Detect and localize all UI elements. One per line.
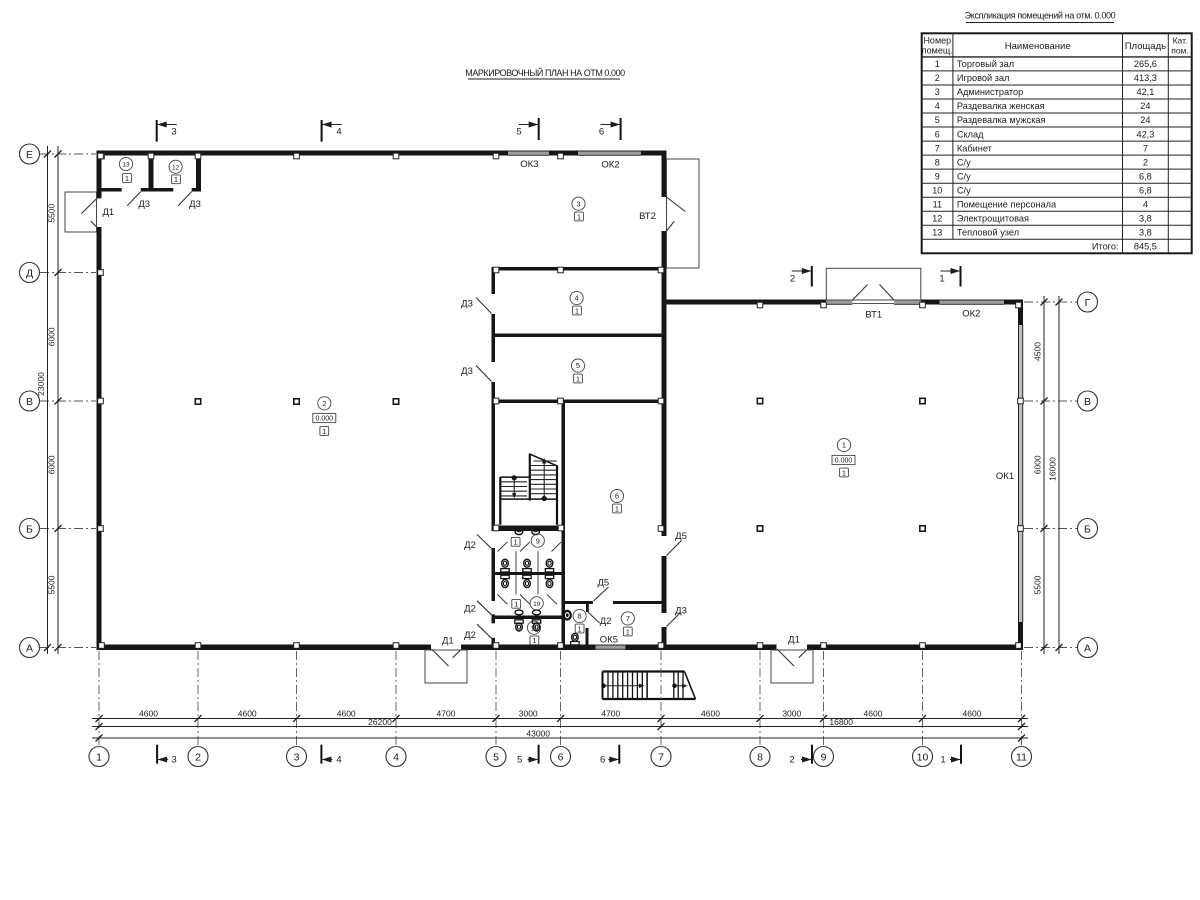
svg-text:5: 5 xyxy=(516,127,521,138)
svg-text:4600: 4600 xyxy=(701,709,720,719)
svg-text:10: 10 xyxy=(917,751,929,763)
svg-text:6000: 6000 xyxy=(47,327,57,346)
svg-text:Наименование: Наименование xyxy=(1005,41,1071,52)
svg-text:Итого:: Итого: xyxy=(1092,242,1119,252)
svg-text:С/у: С/у xyxy=(957,185,971,195)
svg-text:Д: Д xyxy=(26,267,33,279)
svg-text:Д3: Д3 xyxy=(675,606,687,617)
svg-text:1: 1 xyxy=(615,504,619,513)
svg-text:26200: 26200 xyxy=(368,717,392,727)
svg-text:ОК5: ОК5 xyxy=(600,635,618,646)
svg-text:Склад: Склад xyxy=(957,129,984,139)
svg-text:4: 4 xyxy=(575,294,579,303)
svg-text:3: 3 xyxy=(935,87,940,97)
svg-text:845,5: 845,5 xyxy=(1134,242,1157,252)
svg-text:ОК3: ОК3 xyxy=(520,159,538,170)
svg-text:4: 4 xyxy=(336,127,341,138)
svg-text:6: 6 xyxy=(935,129,940,139)
svg-text:1: 1 xyxy=(532,636,536,645)
svg-text:5: 5 xyxy=(493,751,499,763)
svg-text:2: 2 xyxy=(790,274,795,285)
svg-text:Торговый зал: Торговый зал xyxy=(957,59,1014,69)
svg-text:1: 1 xyxy=(96,751,102,763)
svg-text:3,8: 3,8 xyxy=(1139,228,1152,238)
svg-text:1: 1 xyxy=(576,374,580,383)
svg-text:2: 2 xyxy=(195,751,201,763)
svg-text:3000: 3000 xyxy=(782,709,801,719)
svg-text:5: 5 xyxy=(576,361,580,370)
svg-text:4: 4 xyxy=(336,755,341,766)
svg-text:Раздевалка мужская: Раздевалка мужская xyxy=(957,115,1046,125)
svg-text:42,3: 42,3 xyxy=(1136,129,1154,139)
svg-text:4600: 4600 xyxy=(238,709,257,719)
svg-text:4700: 4700 xyxy=(601,709,620,719)
svg-text:7: 7 xyxy=(658,751,664,763)
svg-text:12: 12 xyxy=(172,164,180,171)
svg-text:4700: 4700 xyxy=(437,709,456,719)
svg-text:Б: Б xyxy=(1084,523,1091,535)
svg-text:помещ.: помещ. xyxy=(922,46,953,56)
svg-text:Д3: Д3 xyxy=(189,199,201,210)
svg-text:1: 1 xyxy=(939,274,944,285)
svg-text:6: 6 xyxy=(599,127,604,138)
svg-text:13: 13 xyxy=(932,228,942,238)
svg-text:В: В xyxy=(26,396,33,408)
svg-text:Д1: Д1 xyxy=(102,207,114,218)
svg-text:6000: 6000 xyxy=(47,455,57,474)
svg-text:413,3: 413,3 xyxy=(1134,73,1157,83)
svg-text:7: 7 xyxy=(935,143,940,153)
svg-text:4600: 4600 xyxy=(963,709,982,719)
svg-text:А: А xyxy=(26,642,33,654)
svg-text:Номер: Номер xyxy=(923,36,951,46)
svg-text:3: 3 xyxy=(171,755,176,766)
svg-text:2: 2 xyxy=(322,399,326,408)
svg-text:8: 8 xyxy=(578,612,582,621)
svg-text:9: 9 xyxy=(935,171,940,181)
svg-text:1: 1 xyxy=(940,755,945,766)
svg-text:11: 11 xyxy=(1016,751,1027,763)
svg-text:24: 24 xyxy=(1140,115,1150,125)
svg-text:Д5: Д5 xyxy=(597,578,609,589)
svg-text:1: 1 xyxy=(578,624,582,633)
svg-text:6: 6 xyxy=(600,755,605,766)
svg-text:С/у: С/у xyxy=(957,171,971,181)
svg-text:1: 1 xyxy=(575,306,579,315)
svg-text:24: 24 xyxy=(1140,101,1150,111)
svg-text:2: 2 xyxy=(935,73,940,83)
svg-text:Кабинет: Кабинет xyxy=(957,143,993,153)
svg-text:16800: 16800 xyxy=(829,717,853,727)
svg-text:В: В xyxy=(1084,396,1091,408)
svg-text:5500: 5500 xyxy=(47,575,57,594)
svg-text:Кат.: Кат. xyxy=(1173,36,1188,46)
svg-text:10: 10 xyxy=(932,185,942,195)
svg-text:16000: 16000 xyxy=(1048,457,1058,481)
svg-text:ОК2: ОК2 xyxy=(601,160,619,171)
svg-text:Игровой зал: Игровой зал xyxy=(957,73,1009,83)
svg-text:6: 6 xyxy=(615,492,619,501)
svg-text:1: 1 xyxy=(626,627,630,636)
svg-text:5: 5 xyxy=(935,115,940,125)
svg-text:Е: Е xyxy=(26,149,33,161)
svg-text:Раздевалка женская: Раздевалка женская xyxy=(957,101,1045,111)
svg-text:3: 3 xyxy=(294,751,300,763)
svg-text:Д3: Д3 xyxy=(461,366,473,377)
svg-text:1: 1 xyxy=(842,441,846,450)
svg-text:3,8: 3,8 xyxy=(1139,213,1152,223)
svg-text:4: 4 xyxy=(393,751,399,763)
svg-text:Тепловой узел: Тепловой узел xyxy=(957,228,1019,238)
svg-text:пом.: пом. xyxy=(1171,46,1189,56)
svg-text:Д2: Д2 xyxy=(464,604,476,615)
svg-text:43000: 43000 xyxy=(526,729,550,739)
svg-text:6,8: 6,8 xyxy=(1139,171,1152,181)
svg-text:С/у: С/у xyxy=(957,157,971,167)
svg-text:1: 1 xyxy=(322,427,326,436)
svg-text:Д1: Д1 xyxy=(442,636,454,647)
svg-text:1: 1 xyxy=(514,538,518,547)
svg-text:Б: Б xyxy=(26,523,33,535)
svg-text:11: 11 xyxy=(531,625,538,632)
svg-text:0.000: 0.000 xyxy=(835,458,853,465)
svg-text:4: 4 xyxy=(935,101,940,111)
svg-text:3: 3 xyxy=(171,127,176,138)
svg-text:4: 4 xyxy=(1143,199,1148,209)
svg-text:4600: 4600 xyxy=(864,709,883,719)
svg-text:Д2: Д2 xyxy=(600,616,612,627)
svg-text:11: 11 xyxy=(933,199,942,209)
svg-text:Д3: Д3 xyxy=(461,299,473,310)
svg-text:1: 1 xyxy=(174,175,178,184)
svg-text:1: 1 xyxy=(935,59,940,69)
svg-text:8: 8 xyxy=(757,751,763,763)
svg-text:12: 12 xyxy=(932,213,942,223)
svg-text:4600: 4600 xyxy=(337,709,356,719)
svg-text:А: А xyxy=(1084,642,1091,654)
svg-text:1: 1 xyxy=(842,468,846,477)
svg-text:10: 10 xyxy=(533,601,541,608)
svg-text:5500: 5500 xyxy=(1033,575,1043,594)
svg-text:Д3: Д3 xyxy=(138,199,150,210)
svg-text:ОК1: ОК1 xyxy=(996,471,1014,482)
svg-text:9: 9 xyxy=(821,751,827,763)
svg-text:7: 7 xyxy=(626,614,630,623)
svg-text:МАРКИРОВОЧНЫЙ ПЛАН НА ОТМ 0.00: МАРКИРОВОЧНЫЙ ПЛАН НА ОТМ 0.000 xyxy=(465,67,625,78)
svg-text:3: 3 xyxy=(576,199,580,208)
svg-text:1: 1 xyxy=(125,174,129,183)
svg-text:8: 8 xyxy=(935,157,940,167)
svg-text:Д5: Д5 xyxy=(675,531,687,542)
svg-text:265,6: 265,6 xyxy=(1134,59,1157,69)
svg-text:ВТ2: ВТ2 xyxy=(639,211,656,222)
svg-text:Помещение персонала: Помещение персонала xyxy=(957,199,1057,209)
svg-text:3000: 3000 xyxy=(519,709,538,719)
svg-text:2: 2 xyxy=(789,755,794,766)
svg-text:1: 1 xyxy=(577,212,581,221)
svg-text:7: 7 xyxy=(1143,143,1148,153)
svg-text:6000: 6000 xyxy=(1033,455,1043,474)
svg-text:Площадь: Площадь xyxy=(1125,41,1166,52)
svg-text:13: 13 xyxy=(122,162,130,169)
svg-text:9: 9 xyxy=(536,536,540,545)
svg-text:5: 5 xyxy=(517,755,522,766)
svg-text:Д2: Д2 xyxy=(464,630,476,641)
svg-text:23000: 23000 xyxy=(36,372,46,396)
svg-text:4600: 4600 xyxy=(139,709,158,719)
svg-text:Д1: Д1 xyxy=(788,635,800,646)
svg-text:Д2: Д2 xyxy=(464,540,476,551)
svg-text:4500: 4500 xyxy=(1033,342,1043,361)
svg-text:5500: 5500 xyxy=(47,203,57,222)
svg-text:Электрощитовая: Электрощитовая xyxy=(957,213,1029,223)
svg-text:Г: Г xyxy=(1085,297,1091,309)
svg-text:ОК2: ОК2 xyxy=(962,309,980,320)
svg-text:6,8: 6,8 xyxy=(1139,185,1152,195)
svg-text:6: 6 xyxy=(558,751,564,763)
svg-text:1: 1 xyxy=(514,600,518,609)
svg-text:2: 2 xyxy=(1143,157,1148,167)
svg-text:Экспликация помещений на отм.: Экспликация помещений на отм. 0.000 xyxy=(965,11,1116,21)
svg-text:42,1: 42,1 xyxy=(1136,87,1154,97)
svg-text:Администратор: Администратор xyxy=(957,87,1023,97)
svg-text:ВТ1: ВТ1 xyxy=(865,310,882,321)
svg-text:0.000: 0.000 xyxy=(316,416,334,423)
